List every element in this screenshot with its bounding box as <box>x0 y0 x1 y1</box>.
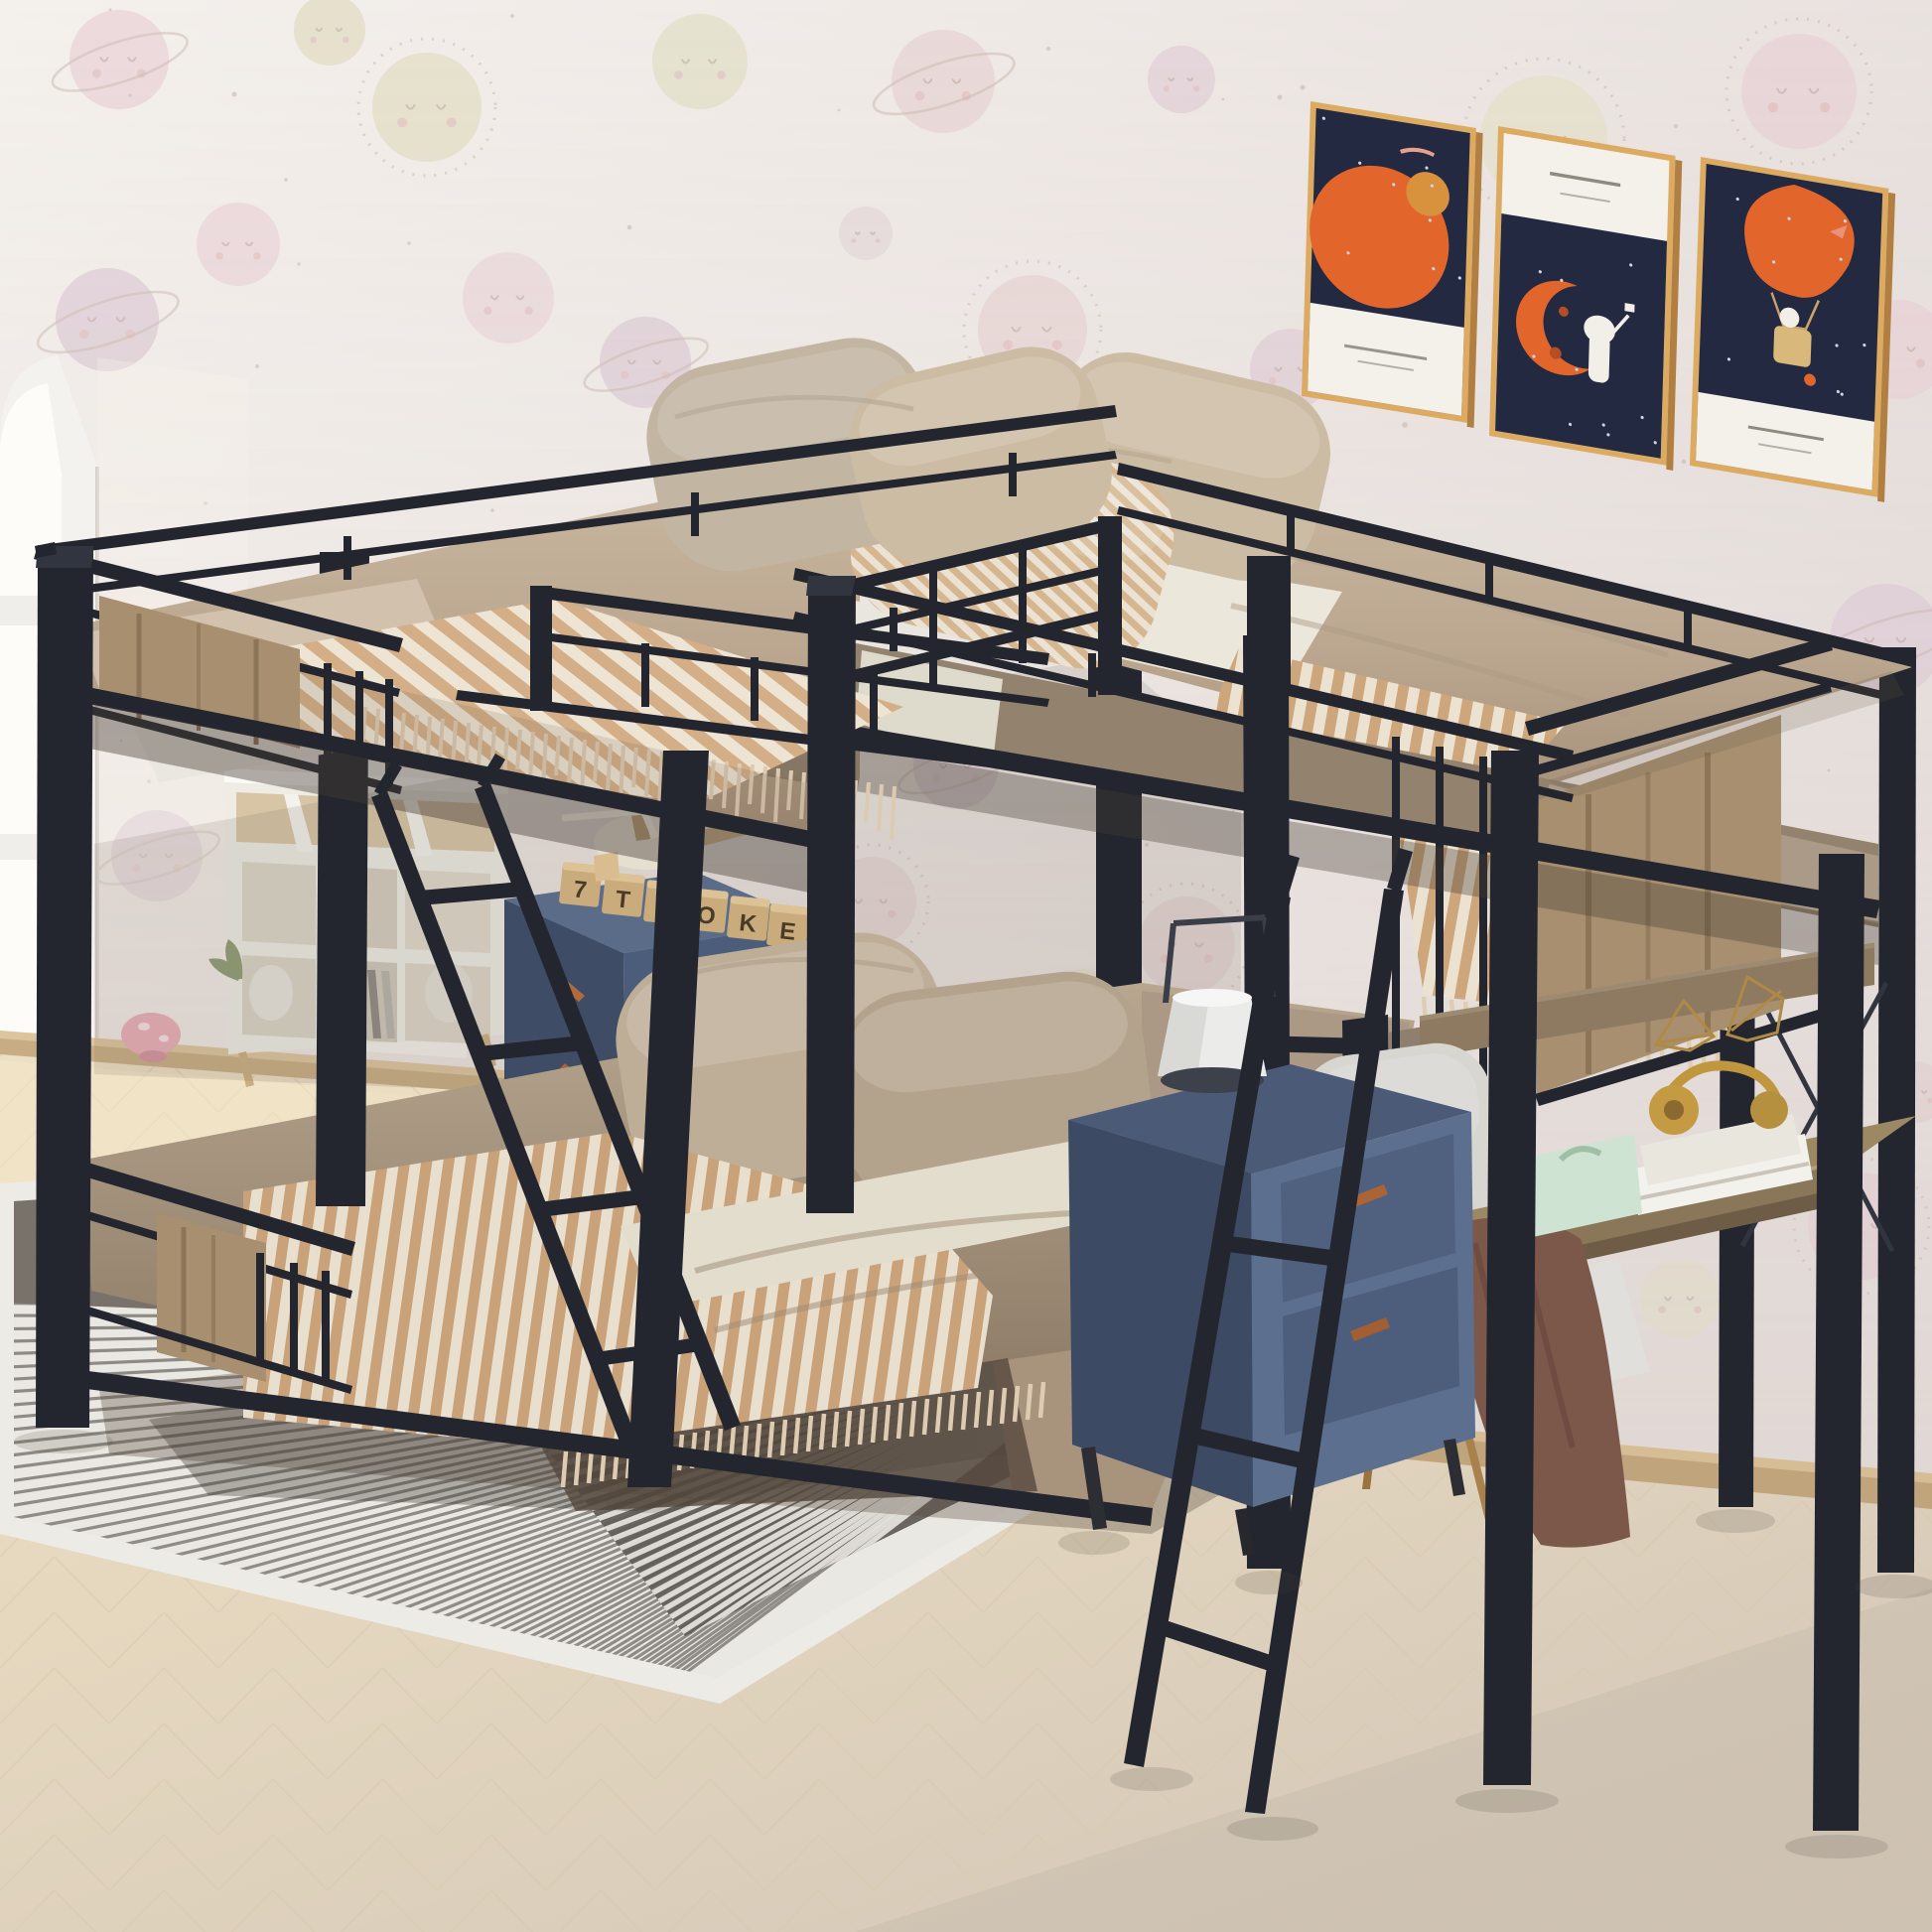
svg-text:7: 7 <box>572 876 588 903</box>
svg-text:K: K <box>738 909 759 938</box>
svg-text:E: E <box>778 917 797 946</box>
